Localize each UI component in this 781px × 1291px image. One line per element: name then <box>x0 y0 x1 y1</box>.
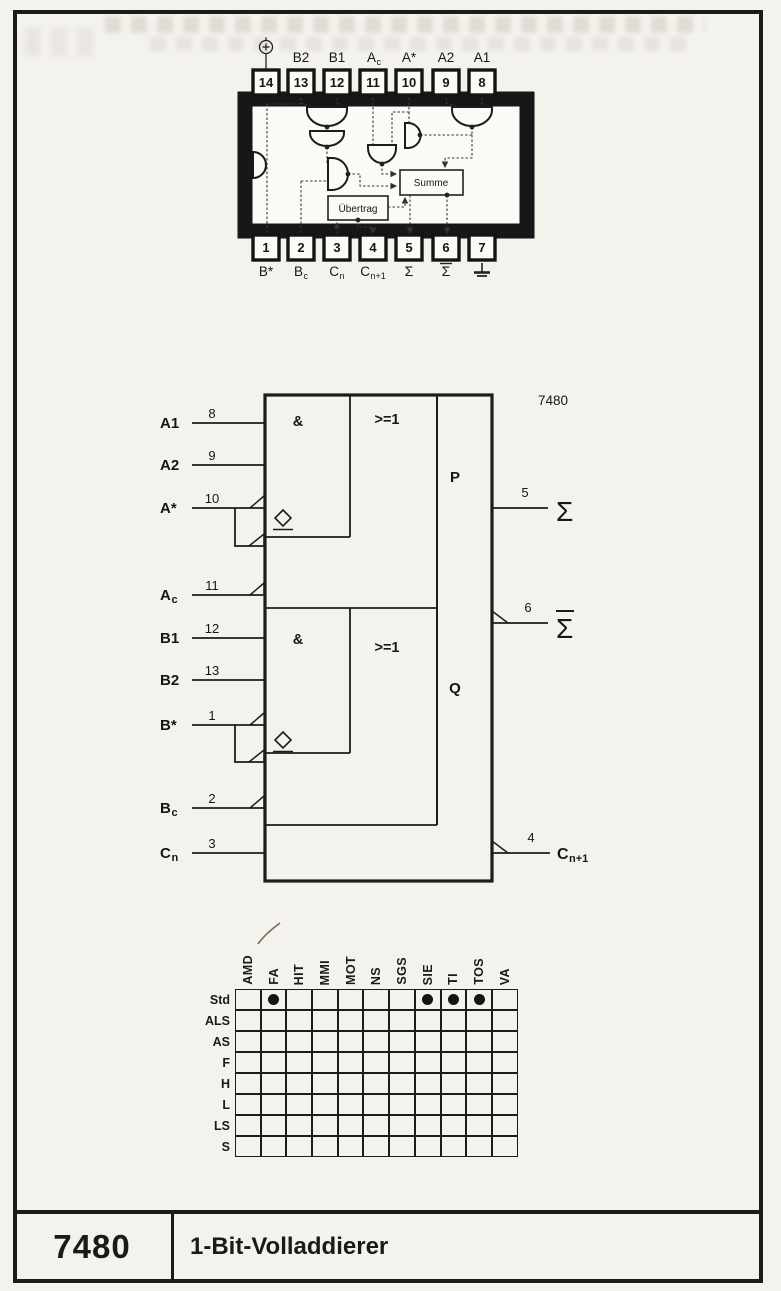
output-pin: 4 <box>527 830 534 845</box>
input-pin: 8 <box>208 406 215 421</box>
table-cell <box>415 1073 441 1094</box>
column-header: SGS <box>389 932 415 989</box>
databook-page: 7480 Summe Übertrag <box>0 0 781 1291</box>
output-label: Σ <box>556 613 573 644</box>
table-cell <box>235 1073 261 1094</box>
pin-label: B2 <box>293 50 310 65</box>
pin-label: C <box>329 264 339 279</box>
input-label: A1 <box>160 415 179 432</box>
table-cell <box>338 1052 364 1073</box>
row-header: LS <box>202 1115 235 1136</box>
table-cell <box>441 989 467 1010</box>
input-label: A2 <box>160 457 179 474</box>
pin-label: A* <box>402 50 417 65</box>
column-header: FA <box>261 932 287 989</box>
table-cell <box>286 1073 312 1094</box>
pin-label: A <box>367 50 376 65</box>
input-pin: 2 <box>208 791 215 806</box>
row-header: L <box>202 1094 235 1115</box>
polarity-ramp <box>250 713 264 725</box>
table-cell <box>466 1115 492 1136</box>
table-cell <box>441 1094 467 1115</box>
vcc-icon <box>260 38 273 71</box>
input-lines <box>192 423 265 853</box>
manufacturer-label: AMD <box>241 955 255 985</box>
pin-number: 13 <box>294 75 308 90</box>
column-header: MOT <box>338 932 364 989</box>
output-lines <box>492 508 550 853</box>
table-cell <box>312 989 338 1010</box>
table-cell <box>312 1115 338 1136</box>
table-cell <box>441 1136 467 1157</box>
table-cell <box>492 1115 518 1136</box>
input-label: A* <box>160 500 177 517</box>
pin-number: 11 <box>366 75 380 90</box>
column-header: HIT <box>286 932 312 989</box>
column-header: SIE <box>415 932 441 989</box>
row-header: AS <box>202 1031 235 1052</box>
or-block-label: >=1 <box>375 412 400 428</box>
table-cell <box>466 1031 492 1052</box>
input-branch <box>235 508 265 546</box>
table-cell <box>261 1136 287 1157</box>
pin-number: 9 <box>442 75 449 90</box>
table-cell <box>389 1010 415 1031</box>
table-cell <box>312 1031 338 1052</box>
table-cell <box>261 1094 287 1115</box>
pin-label-sub: n <box>340 271 345 281</box>
table-cell <box>312 1052 338 1073</box>
pin-label: B* <box>259 264 274 279</box>
logic-chip-id: 7480 <box>538 393 568 408</box>
table-cell <box>466 1010 492 1031</box>
input-label: A <box>160 587 171 604</box>
pin-label-sub: c <box>304 271 309 281</box>
table-cell <box>338 1136 364 1157</box>
column-header: AMD <box>235 932 261 989</box>
table-cell <box>466 1136 492 1157</box>
input-label-sub: c <box>172 594 178 606</box>
polarity-ramp <box>492 841 508 853</box>
table-cell <box>389 989 415 1010</box>
table-corner <box>202 932 235 989</box>
table-cell <box>338 1073 364 1094</box>
table-cell <box>363 1136 389 1157</box>
footer-part-number: 7480 <box>13 1214 171 1279</box>
table-cell <box>363 989 389 1010</box>
table-cell <box>363 1052 389 1073</box>
pin-label-sub: c <box>377 57 382 67</box>
input-label: B* <box>160 717 177 734</box>
table-cell <box>492 1031 518 1052</box>
table-cell <box>492 1136 518 1157</box>
pin-label: A2 <box>438 50 455 65</box>
or-block-label: >=1 <box>375 640 400 656</box>
table-cell <box>261 1052 287 1073</box>
row-header: H <box>202 1073 235 1094</box>
table-cell <box>235 1136 261 1157</box>
table-cell <box>261 1073 287 1094</box>
table-cell <box>492 1094 518 1115</box>
and-block-label: & <box>293 414 304 430</box>
page-bleedthrough <box>105 16 705 33</box>
column-header: VA <box>492 932 518 989</box>
input-label: B <box>160 800 171 817</box>
manufacturer-label: MMI <box>318 960 332 986</box>
manufacturer-label: TI <box>446 973 460 985</box>
table-cell <box>466 1094 492 1115</box>
manufacturer-label: TOS <box>472 958 486 985</box>
output-label-sub: n+1 <box>569 853 588 865</box>
footer-cell-divider <box>171 1210 174 1279</box>
table-cell <box>338 989 364 1010</box>
input-pin: 10 <box>205 491 219 506</box>
table-cell <box>492 989 518 1010</box>
table-cell <box>441 1115 467 1136</box>
availability-grid: AMDFAHITMMIMOTNSSGSSIETITOSVAStdALSASFHL… <box>202 932 518 1157</box>
input-pin: 11 <box>205 578 219 593</box>
pin-number: 6 <box>442 240 449 255</box>
manufacturer-label: SIE <box>421 964 435 985</box>
pin-number: 8 <box>478 75 485 90</box>
output-label: Σ <box>556 496 573 527</box>
table-cell <box>389 1136 415 1157</box>
manufacturer-label: NS <box>369 967 383 985</box>
table-cell <box>363 1115 389 1136</box>
table-cell <box>261 1115 287 1136</box>
table-cell <box>466 1073 492 1094</box>
table-cell <box>312 1073 338 1094</box>
pin-number: 12 <box>330 75 344 90</box>
table-cell <box>389 1073 415 1094</box>
pin-number: 5 <box>405 240 412 255</box>
input-pin: 1 <box>208 708 215 723</box>
table-cell <box>338 1031 364 1052</box>
table-cell <box>286 989 312 1010</box>
polarity-ramp <box>249 750 264 762</box>
table-cell <box>286 1010 312 1031</box>
input-label-sub: c <box>172 807 178 819</box>
and-block-label: & <box>293 632 304 648</box>
table-cell <box>363 1094 389 1115</box>
table-cell <box>286 1052 312 1073</box>
table-cell <box>261 1031 287 1052</box>
pinout-diagram: 7480 Summe Übertrag <box>220 35 550 293</box>
table-cell <box>389 1094 415 1115</box>
table-cell <box>415 1010 441 1031</box>
input-pin: 3 <box>208 836 215 851</box>
column-header: TI <box>441 932 467 989</box>
table-cell <box>363 1010 389 1031</box>
rotated-chip-id: 7480 <box>519 164 528 181</box>
table-cell <box>492 1052 518 1073</box>
page-bleedthrough <box>25 27 97 57</box>
availability-dot <box>448 994 459 1005</box>
table-cell <box>261 989 287 1010</box>
manufacturer-label: MOT <box>344 956 358 985</box>
pin-label: C <box>360 264 370 279</box>
availability-dot <box>474 994 485 1005</box>
table-cell <box>235 1094 261 1115</box>
input-pin: 12 <box>205 621 219 636</box>
bottom-pin-row: 1 2 3 4 5 6 7 B* B c C n C n+1 Σ Σ <box>253 235 495 281</box>
table-cell <box>492 1073 518 1094</box>
row-header: F <box>202 1052 235 1073</box>
table-cell <box>363 1031 389 1052</box>
p-section-label: P <box>450 469 460 486</box>
table-cell <box>415 1052 441 1073</box>
input-label-sub: n <box>172 852 179 864</box>
table-cell <box>415 1136 441 1157</box>
q-section-label: Q <box>449 680 461 697</box>
pin-number: 1 <box>262 240 269 255</box>
input-label: C <box>160 845 171 862</box>
pin-label-sub: n+1 <box>371 271 386 281</box>
table-cell <box>441 1010 467 1031</box>
table-cell <box>415 989 441 1010</box>
input-branch <box>235 725 265 762</box>
output-labels: 5 Σ 6 Σ 4 C n+1 <box>521 485 588 865</box>
pin-number: 4 <box>369 240 377 255</box>
availability-dot <box>422 994 433 1005</box>
table-cell <box>389 1115 415 1136</box>
pin-number: 14 <box>259 75 274 90</box>
table-cell <box>389 1052 415 1073</box>
table-cell <box>415 1031 441 1052</box>
ground-icon <box>474 263 490 276</box>
input-label: B2 <box>160 672 179 689</box>
manufacturer-label: VA <box>498 968 512 985</box>
output-pin: 6 <box>524 600 531 615</box>
output-pin: 5 <box>521 485 528 500</box>
table-cell <box>441 1052 467 1073</box>
table-cell <box>415 1094 441 1115</box>
open-collector-diamond <box>273 510 293 752</box>
table-cell <box>363 1073 389 1094</box>
table-cell <box>415 1115 441 1136</box>
pin-label: Σ <box>442 263 451 279</box>
input-pin: 9 <box>208 448 215 463</box>
polarity-ramp <box>249 534 264 546</box>
pin-number: 7 <box>478 240 485 255</box>
pin-number: 2 <box>297 240 304 255</box>
table-cell <box>338 1115 364 1136</box>
input-pin: 13 <box>205 663 219 678</box>
table-cell <box>286 1094 312 1115</box>
row-header: S <box>202 1136 235 1157</box>
manufacturer-label: FA <box>267 968 281 985</box>
input-label: B1 <box>160 630 179 647</box>
table-cell <box>286 1031 312 1052</box>
table-cell <box>312 1136 338 1157</box>
pin-label: A1 <box>474 50 491 65</box>
table-cell <box>261 1010 287 1031</box>
polarity-ramp <box>250 796 264 808</box>
footer-title: 1-Bit-Volladdierer <box>190 1214 388 1279</box>
sum-box-label: Summe <box>414 178 449 189</box>
pin-number: 3 <box>333 240 340 255</box>
logic-symbol-diagram: 7480 & >=1 P & >=1 Q <box>150 385 620 905</box>
polarity-ramp <box>250 496 264 508</box>
table-cell <box>389 1031 415 1052</box>
pin-number: 10 <box>402 75 416 90</box>
table-cell <box>235 989 261 1010</box>
table-cell <box>286 1136 312 1157</box>
table-cell <box>492 1010 518 1031</box>
polarity-ramp <box>250 583 264 595</box>
output-label: C <box>557 846 569 863</box>
table-cell <box>466 989 492 1010</box>
carry-box-label: Übertrag <box>339 203 378 215</box>
table-cell <box>338 1094 364 1115</box>
table-cell <box>338 1010 364 1031</box>
table-cell <box>466 1052 492 1073</box>
input-labels: A1 8 A2 9 A* 10 A c 11 B1 12 B2 13 B* 1 … <box>160 406 219 864</box>
table-cell <box>312 1010 338 1031</box>
table-cell <box>441 1031 467 1052</box>
table-cell <box>286 1115 312 1136</box>
column-header: NS <box>363 932 389 989</box>
availability-table: AMDFAHITMMIMOTNSSGSSIETITOSVAStdALSASFHL… <box>202 932 518 1157</box>
polarity-ramps <box>249 496 508 853</box>
manufacturer-label: SGS <box>395 957 409 985</box>
column-header: MMI <box>312 932 338 989</box>
table-cell <box>235 1031 261 1052</box>
row-header: Std <box>202 989 235 1010</box>
availability-dot <box>268 994 279 1005</box>
table-cell <box>235 1115 261 1136</box>
column-header: TOS <box>466 932 492 989</box>
table-cell <box>441 1073 467 1094</box>
pin-label: B1 <box>329 50 346 65</box>
pin-label: Σ <box>405 263 414 279</box>
table-cell <box>312 1094 338 1115</box>
table-cell <box>235 1052 261 1073</box>
top-pin-row: 14 13 12 11 10 9 8 B2 B1 A c A* A2 A1 <box>253 50 495 95</box>
table-cell <box>235 1010 261 1031</box>
pin-label: B <box>294 264 303 279</box>
manufacturer-label: HIT <box>292 964 306 985</box>
row-header: ALS <box>202 1010 235 1031</box>
polarity-ramp <box>492 611 508 623</box>
